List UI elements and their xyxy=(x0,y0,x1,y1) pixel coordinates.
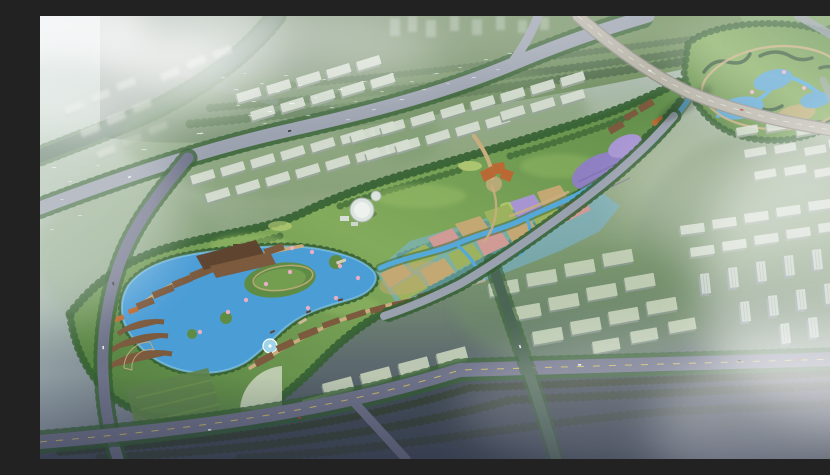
aerial-rendering xyxy=(40,16,830,459)
village-tower xyxy=(233,244,240,254)
masterplan-rendering xyxy=(40,16,830,459)
